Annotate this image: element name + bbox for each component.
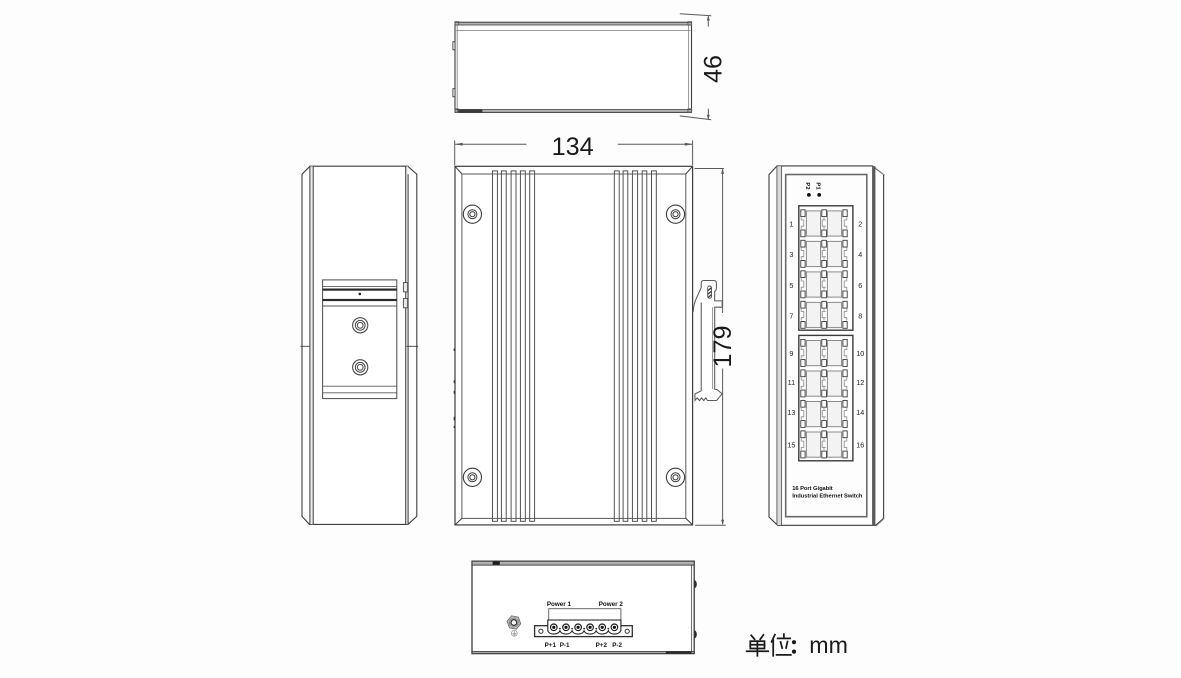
svg-text:10: 10 [856, 349, 864, 358]
svg-text:5: 5 [789, 281, 793, 290]
svg-text:8: 8 [858, 312, 862, 321]
svg-text:16 Port Gigabit: 16 Port Gigabit [792, 486, 833, 492]
svg-text:11: 11 [788, 378, 795, 387]
svg-text:3: 3 [789, 250, 793, 259]
svg-text:P1: P1 [815, 182, 821, 190]
svg-text:16: 16 [856, 440, 864, 449]
svg-text:12: 12 [856, 378, 864, 387]
svg-text:9: 9 [789, 349, 793, 358]
svg-text:P+1: P+1 [545, 642, 557, 649]
svg-text:4: 4 [858, 250, 862, 259]
svg-text:46: 46 [700, 55, 728, 83]
svg-text:mm: mm [809, 632, 848, 658]
svg-text:Industrial Ethernet Switch: Industrial Ethernet Switch [792, 493, 863, 499]
svg-text:6: 6 [858, 281, 862, 290]
svg-text:13: 13 [787, 408, 795, 417]
svg-text:1: 1 [789, 220, 793, 229]
svg-text:134: 134 [552, 133, 594, 161]
svg-text:P+2: P+2 [596, 642, 608, 649]
svg-text:Power 2: Power 2 [599, 601, 624, 608]
svg-text:Power 1: Power 1 [547, 601, 572, 608]
svg-text:2: 2 [858, 220, 862, 229]
svg-text:P2: P2 [804, 182, 810, 190]
svg-text:7: 7 [789, 312, 793, 321]
svg-text:P-1: P-1 [560, 642, 570, 649]
svg-text:15: 15 [787, 440, 795, 449]
svg-text:P-2: P-2 [612, 642, 622, 649]
svg-text:14: 14 [856, 408, 864, 417]
svg-text:179: 179 [709, 325, 737, 367]
